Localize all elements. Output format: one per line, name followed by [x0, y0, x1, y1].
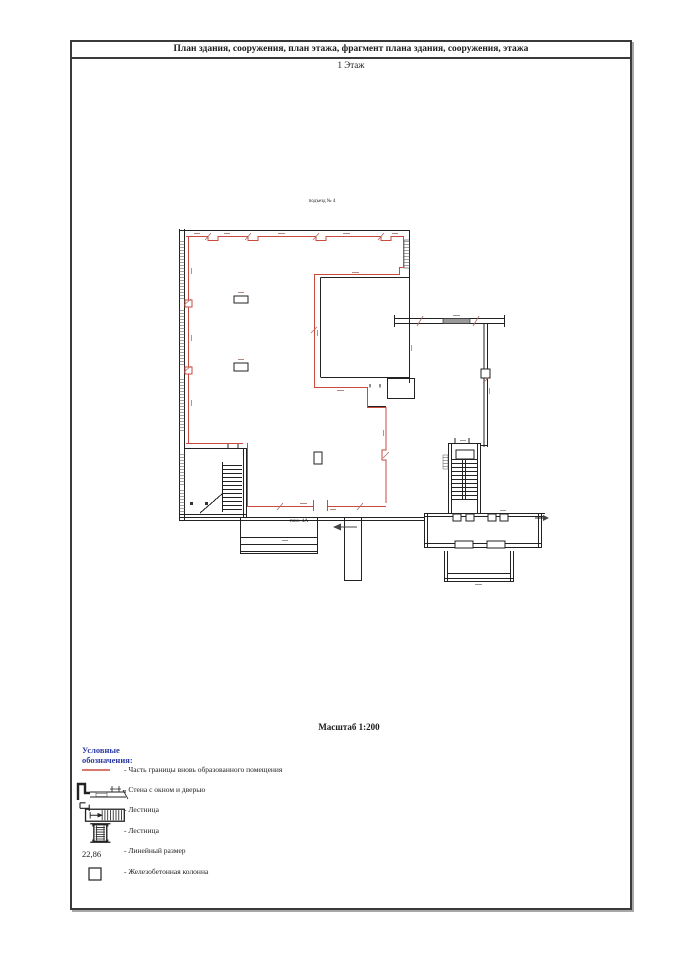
legend-label: - Лестница [124, 826, 159, 835]
legend-label: - Стена с окном и дверью [124, 785, 205, 794]
legend-label: - Линейный размер [124, 846, 186, 855]
legend-label: - Железобетонная колонна [124, 867, 208, 876]
page-title: План здания, сооружения, план этажа, фра… [72, 42, 630, 59]
linear-dimension-sample: 22,86 [82, 849, 101, 859]
legend-row-column: - Железобетонная колонна [76, 862, 496, 886]
legend-label: - Лестница [124, 805, 159, 814]
entrance-label: подъезд № 4 [296, 199, 348, 204]
room-4a-label: пом. 4А [278, 518, 320, 524]
scale-label: Масштаб 1:200 [70, 722, 628, 732]
legend-label: - Часть границы вновь образованного поме… [124, 765, 282, 774]
floor-label: 1 Этаж [72, 59, 630, 72]
document-page: План здания, сооружения, план этажа, фра… [0, 0, 679, 960]
